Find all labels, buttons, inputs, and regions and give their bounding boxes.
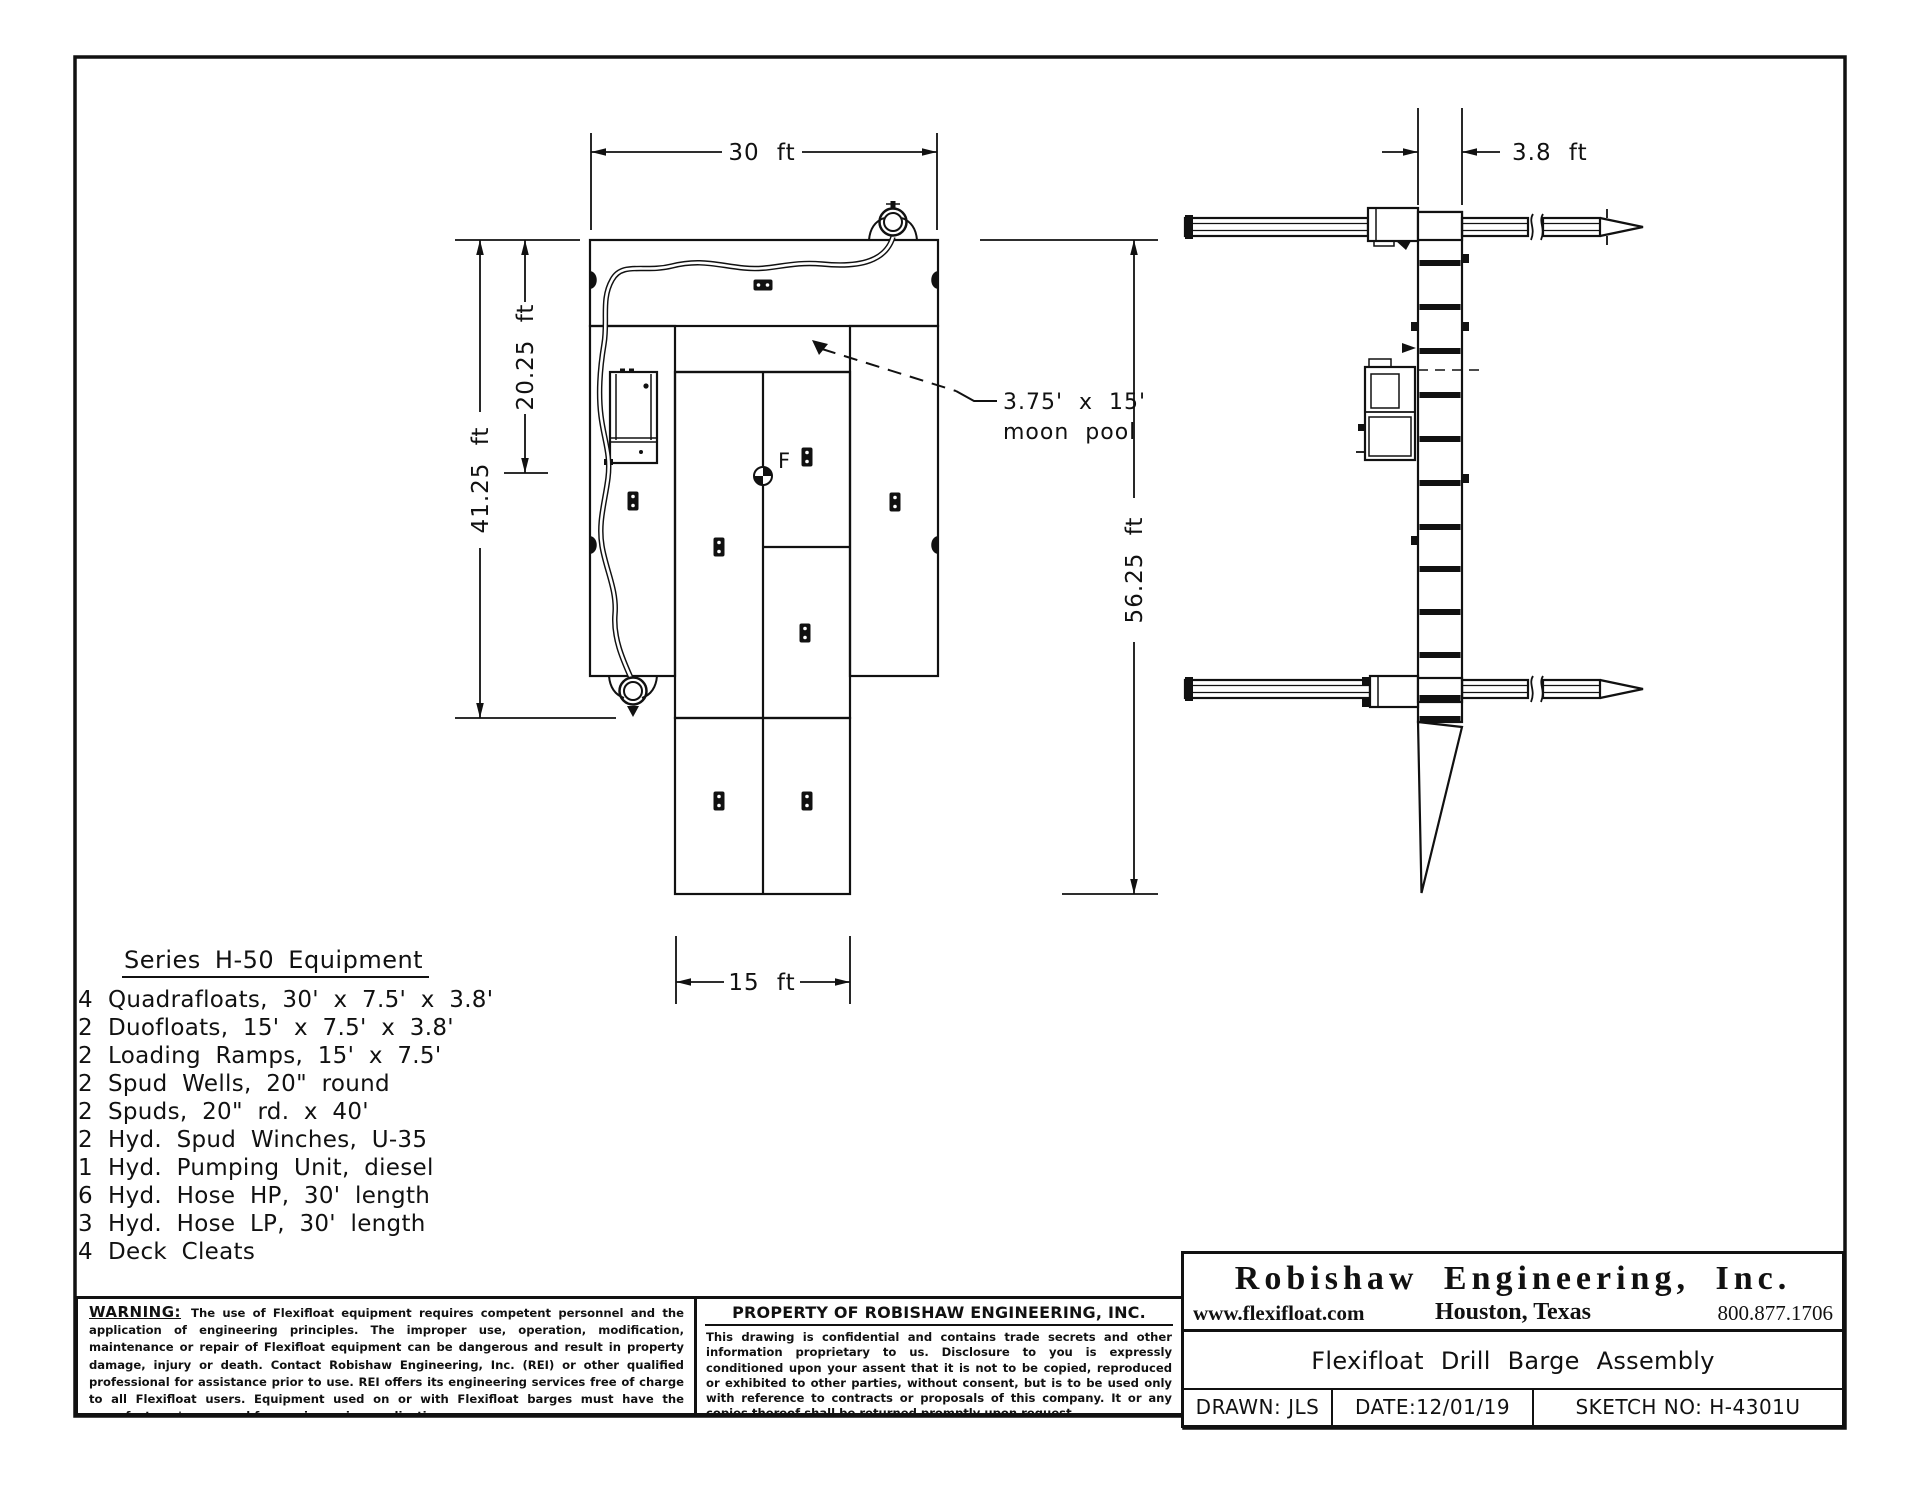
side-lower-spud: [1185, 676, 1643, 707]
title-block-info-row: DRAWN: JLS DATE:12/01/19 SKETCH NO: H-43…: [1184, 1390, 1842, 1425]
equipment-item: 4Deck Cleats: [78, 1238, 538, 1266]
equipment-item: 6Hyd. Hose HP, 30' length: [78, 1182, 538, 1210]
pad-eye-icon: [890, 493, 901, 512]
property-notice-box: PROPERTY OF ROBISHAW ENGINEERING, INC. T…: [694, 1296, 1184, 1416]
cleat-icon: [931, 536, 938, 554]
dim-5625ft-label: 56.25 ft: [1122, 517, 1148, 624]
item-qty: 1: [78, 1154, 108, 1182]
item-desc: Hyd. Spud Winches, U-35: [108, 1127, 427, 1153]
item-desc: Quadrafloats, 30' x 7.5' x 3.8': [108, 987, 493, 1013]
drawing-date: DATE:12/01/19: [1333, 1390, 1534, 1425]
equipment-item: 2Spuds, 20" rd. x 40': [78, 1098, 538, 1126]
item-qty: 2: [78, 1042, 108, 1070]
hydraulic-pumping-unit: [604, 369, 657, 466]
item-desc: Hyd. Hose HP, 30' length: [108, 1183, 430, 1209]
pad-eye-icon: [754, 280, 773, 291]
equipment-item: 1Hyd. Pumping Unit, diesel: [78, 1154, 538, 1182]
company-website: www.flexifloat.com: [1193, 1301, 1406, 1326]
moon-pool-callout: 3.75' x 15' moon pool: [812, 340, 1146, 445]
title-block-contact-row: www.flexifloat.com Houston, Texas 800.87…: [1184, 1301, 1842, 1332]
side-spud-winch: [1356, 359, 1415, 460]
equipment-item: 2Hyd. Spud Winches, U-35: [78, 1126, 538, 1154]
side-top-spud: [1185, 208, 1643, 250]
item-qty: 2: [78, 1014, 108, 1042]
company-phone: 800.877.1706: [1620, 1301, 1833, 1326]
item-desc: Hyd. Hose LP, 30' length: [108, 1211, 426, 1237]
pad-eye-icon: [802, 792, 813, 811]
dim-38ft-label: 3.8 ft: [1512, 140, 1588, 166]
cleat-icon: [590, 271, 597, 289]
flotation-label: F: [778, 449, 790, 473]
item-desc: Duofloats, 15' x 7.5' x 3.8': [108, 1015, 454, 1041]
equipment-item: 2Loading Ramps, 15' x 7.5': [78, 1042, 538, 1070]
title-block: Robishaw Engineering, Inc. www.flexifloa…: [1181, 1251, 1845, 1428]
company-name: Robishaw Engineering, Inc.: [1184, 1254, 1842, 1301]
side-hull-wedge: [1418, 722, 1462, 893]
dim-2025ft-label: 20.25 ft: [513, 304, 539, 411]
equipment-item: 4Quadrafloats, 30' x 7.5' x 3.8': [78, 986, 538, 1014]
dimension-15ft: 15 ft: [676, 936, 850, 1004]
dim-30ft-label: 30 ft: [728, 140, 795, 166]
warning-label: WARNING:: [89, 1303, 181, 1321]
item-qty: 2: [78, 1126, 108, 1154]
drawing-sheet: F 3.75' x 15' moon pool 30 ft 20.25 ft: [0, 0, 1920, 1484]
warning-box: WARNING:The use of Flexifloat equipment …: [75, 1296, 697, 1416]
equipment-item: 3Hyd. Hose LP, 30' length: [78, 1210, 538, 1238]
pad-eye-icon: [714, 792, 725, 811]
item-desc: Spuds, 20" rd. x 40': [108, 1099, 369, 1125]
item-qty: 6: [78, 1182, 108, 1210]
equipment-item: 2Spud Wells, 20" round: [78, 1070, 538, 1098]
item-qty: 3: [78, 1210, 108, 1238]
warning-text: The use of Flexifloat equipment requires…: [89, 1306, 684, 1416]
dimension-38ft: 3.8 ft: [1382, 108, 1588, 205]
plan-view: [590, 240, 938, 894]
property-notice-title: PROPERTY OF ROBISHAW ENGINEERING, INC.: [705, 1299, 1173, 1326]
item-desc: Spud Wells, 20" round: [108, 1071, 390, 1097]
item-qty: 2: [78, 1070, 108, 1098]
pad-eye-icon: [802, 448, 813, 467]
side-hull-column: [1418, 212, 1462, 722]
dim-4125ft-label: 41.25 ft: [468, 427, 494, 534]
moon-pool-label: moon pool: [1003, 420, 1136, 445]
dimension-5625ft: 56.25 ft: [980, 240, 1158, 894]
item-desc: Loading Ramps, 15' x 7.5': [108, 1043, 441, 1069]
drawn-by: DRAWN: JLS: [1184, 1390, 1333, 1425]
equipment-list-title: Series H-50 Equipment: [122, 946, 429, 978]
dim-15ft-label: 15 ft: [728, 970, 795, 996]
item-desc: Deck Cleats: [108, 1239, 255, 1265]
dimension-30ft: 30 ft: [591, 133, 937, 230]
fairlead-bottom-icon: [609, 676, 657, 717]
flotation-symbol: F: [754, 449, 790, 485]
item-qty: 4: [78, 986, 108, 1014]
moon-pool-size-label: 3.75' x 15': [1003, 390, 1146, 415]
item-qty: 2: [78, 1098, 108, 1126]
side-view: [1185, 208, 1643, 893]
cleat-icon: [931, 271, 938, 289]
drawing-title: Flexifloat Drill Barge Assembly: [1184, 1332, 1842, 1390]
equipment-list: Series H-50 Equipment 4Quadrafloats, 30'…: [78, 946, 538, 1266]
sketch-number: SKETCH NO: H-4301U: [1534, 1390, 1842, 1425]
company-location: Houston, Texas: [1406, 1299, 1619, 1326]
pad-eye-icon: [800, 624, 811, 643]
fairlead-top-icon: [869, 201, 917, 240]
item-qty: 4: [78, 1238, 108, 1266]
property-notice-text: This drawing is confidential and contain…: [697, 1326, 1181, 1416]
pad-eye-icon: [714, 538, 725, 557]
item-desc: Hyd. Pumping Unit, diesel: [108, 1155, 434, 1181]
cleat-icon: [590, 536, 597, 554]
pad-eye-icon: [628, 492, 639, 511]
equipment-item: 2Duofloats, 15' x 7.5' x 3.8': [78, 1014, 538, 1042]
equipment-rows: 4Quadrafloats, 30' x 7.5' x 3.8' 2Duoflo…: [78, 986, 538, 1266]
